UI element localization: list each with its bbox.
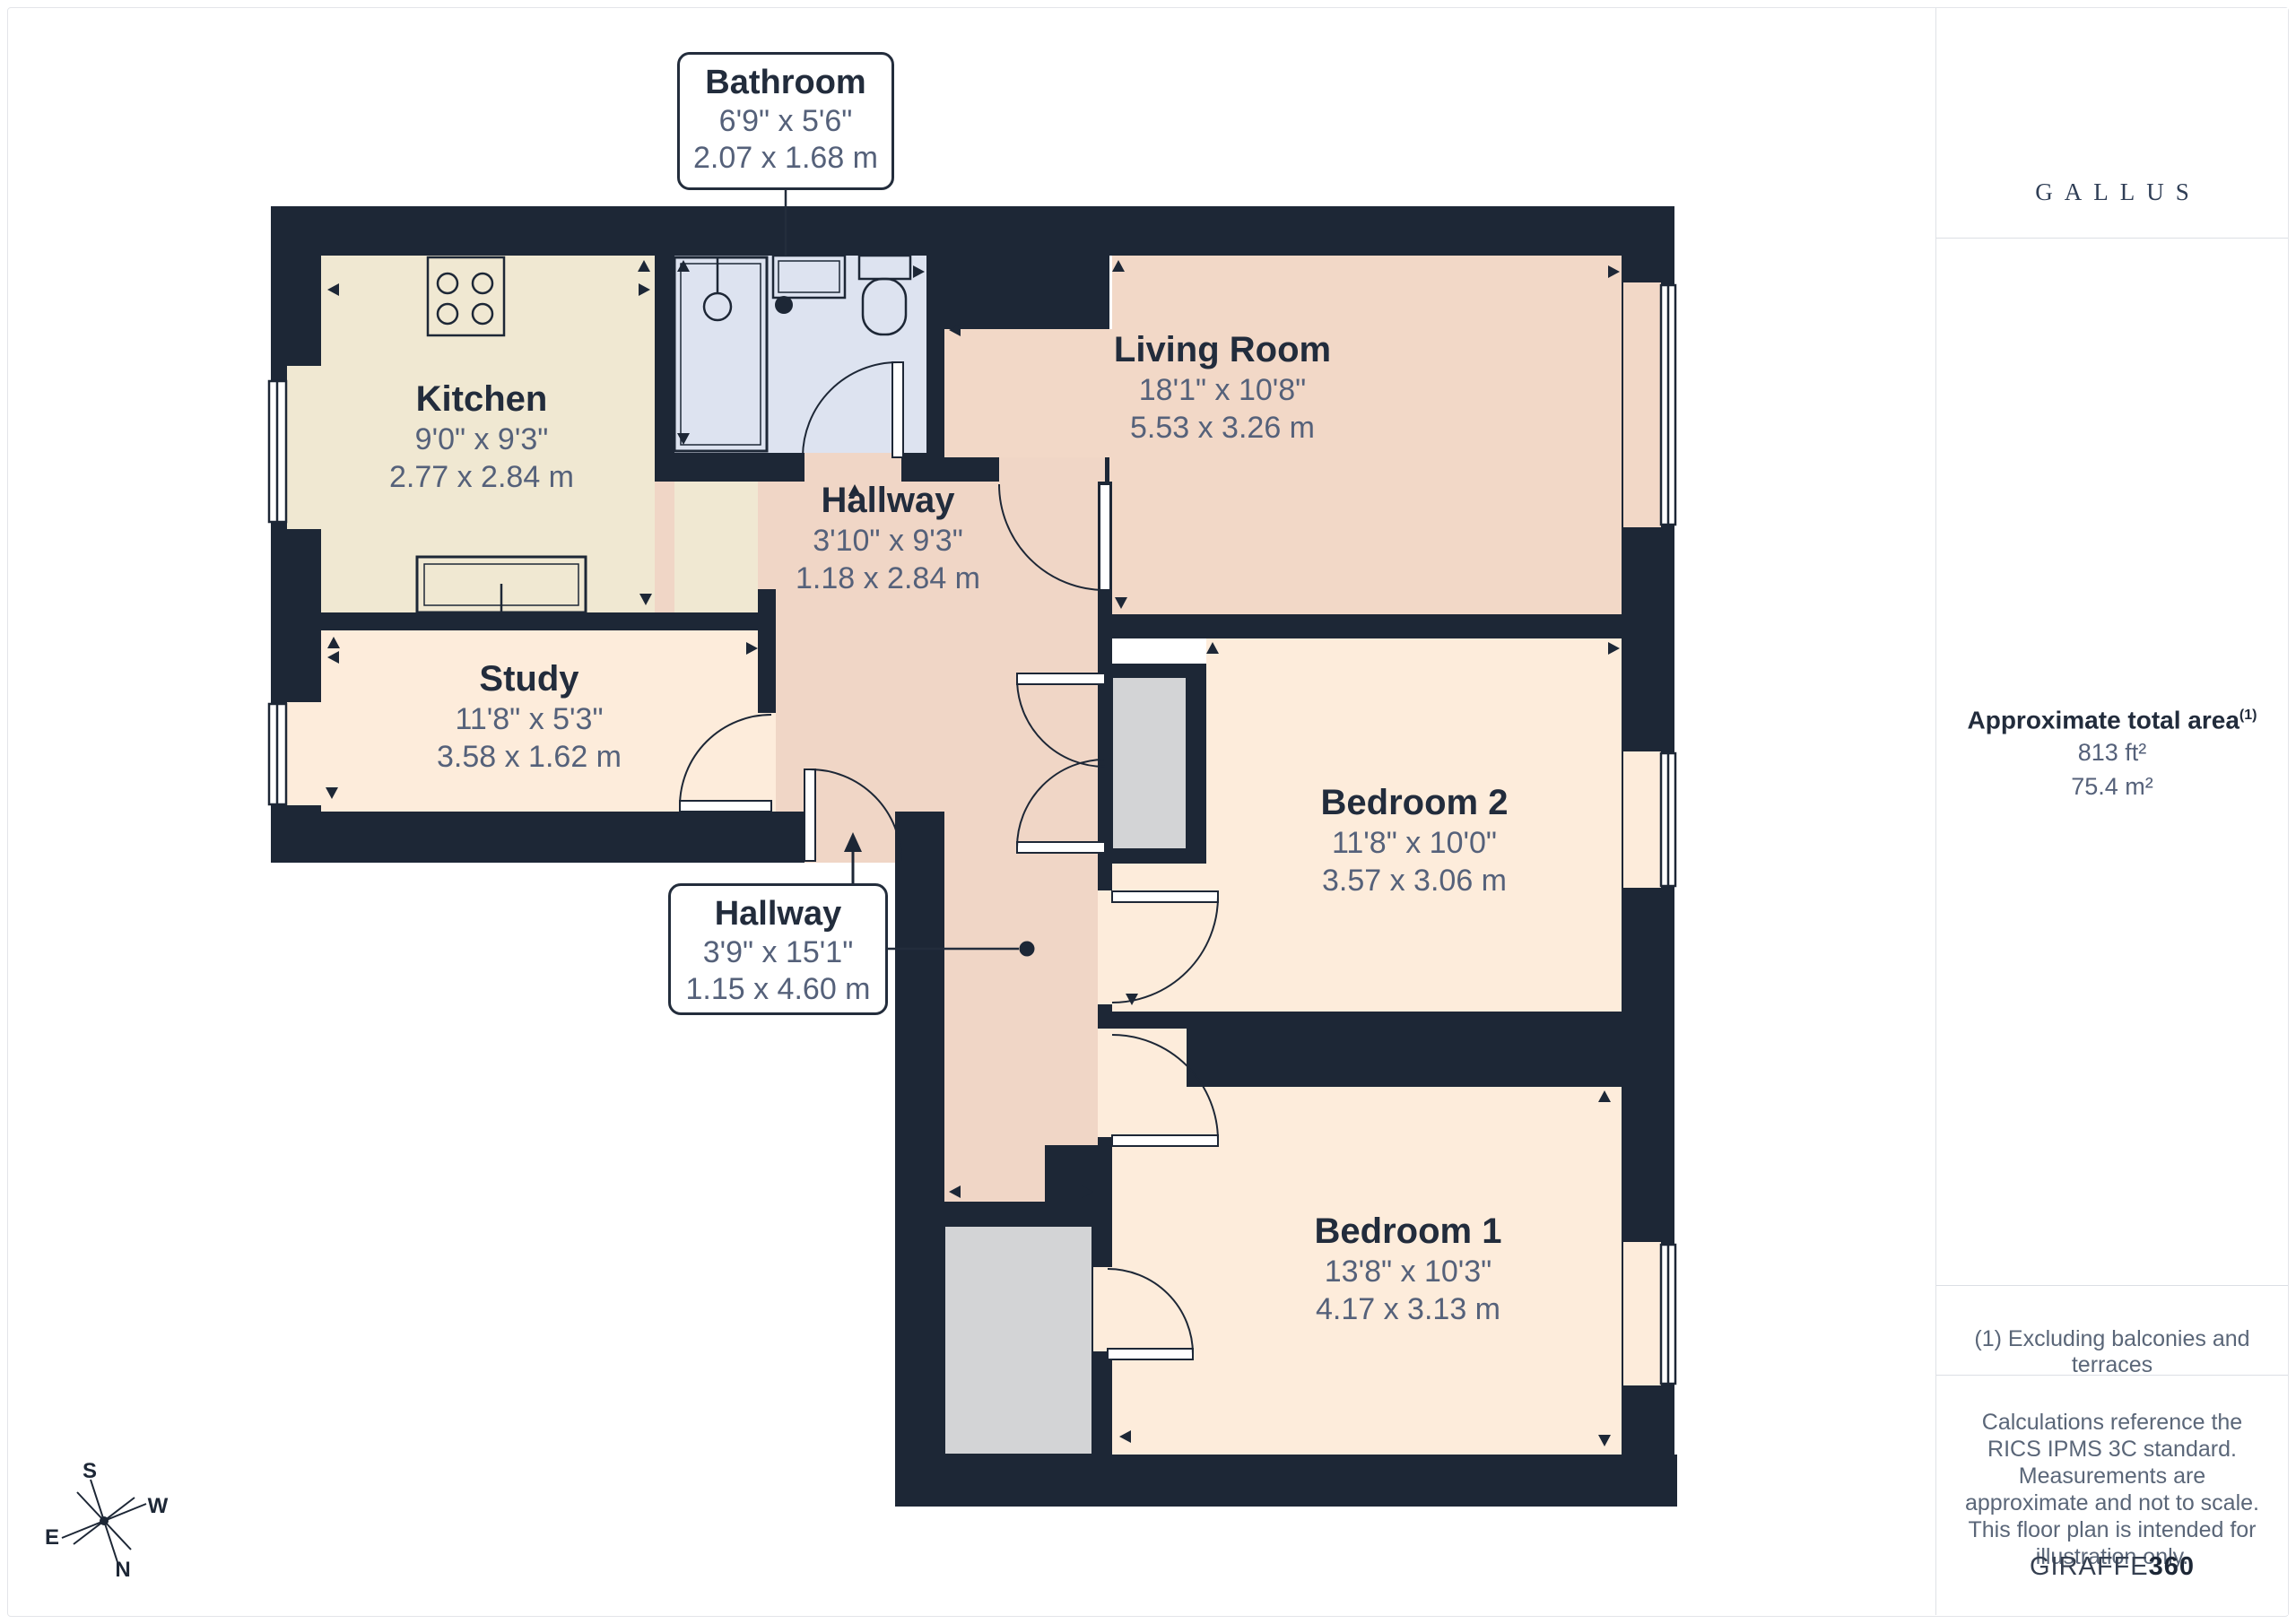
bedroom1-window-recess [1623,1242,1661,1385]
disclaimer-text: Calculations reference the RICS IPMS 3C … [1960,1409,2265,1570]
total-area-title: Approximate total area(1) [1936,700,2288,735]
compass-n: N [115,1558,130,1582]
gallus-logo: GALLUS [1936,35,2288,206]
compass-s: S [83,1459,97,1483]
sidebar-divider [1936,1285,2288,1286]
gallus-brand-text: GALLUS [1936,178,2288,206]
sidebar-divider [1936,1375,2288,1376]
bifold-door-leaf-bottom [1017,842,1105,853]
bedroom2-window-recess [1623,751,1661,888]
bedroom2-closet [1112,677,1187,849]
entrance-door-leaf [804,769,815,861]
study-door-leaf [680,801,771,812]
bathroom-floor [674,256,926,453]
bedroom1-door-leaf [1112,1135,1218,1146]
total-area-metric: 75.4 m² [1936,769,2288,803]
compass-icon: S W E N [45,1459,169,1582]
info-sidebar: GALLUS Approximate total area(1) 813 ft²… [1935,8,2288,1615]
bifold-door-leaf-top [1017,673,1105,684]
kitchen-floor-extension [674,482,758,612]
total-area-imperial: 813 ft² [1936,735,2288,769]
bedroom2-door-leaf [1112,891,1218,902]
living-room-label: Living Room 18'1" x 10'8" 5.53 x 3.26 m [1114,328,1331,447]
bathroom-door-leaf [892,362,903,457]
hall-storage-closet [944,1226,1092,1455]
bathroom-callout: Bathroom 6'9" x 5'6" 2.07 x 1.68 m [677,52,894,190]
basin-tap-icon [775,296,793,314]
kitchen-label: Kitchen 9'0" x 9'3" 2.77 x 2.84 m [389,378,574,496]
compass-e: E [45,1525,59,1550]
study-window-recess [287,702,321,805]
closet-door-leaf [1108,1349,1193,1359]
floorplan-page: S W E N Kitchen 9'0" x 9'3" 2.77 x 2.84 … [0,0,2296,1624]
sidebar-divider [1936,238,2288,239]
living-door-leaf [1100,484,1110,590]
compass-w: W [148,1494,169,1518]
total-area-block: Approximate total area(1) 813 ft² 75.4 m… [1936,700,2288,803]
kitchen-window-recess [287,366,321,529]
giraffe360-credit: GIRAFFE360 [1936,1552,2288,1582]
hallway-lower-callout: Hallway 3'9" x 15'1" 1.15 x 4.60 m [668,883,888,1015]
bedroom2-label: Bedroom 2 11'8" x 10'0" 3.57 x 3.06 m [1321,781,1509,899]
bedroom1-label: Bedroom 1 13'8" x 10'3" 4.17 x 3.13 m [1315,1210,1502,1328]
study-label: Study 11'8" x 5'3" 3.58 x 1.62 m [437,657,622,776]
living-window-recess [1623,282,1661,527]
hallway-upper-label: Hallway 3'10" x 9'3" 1.18 x 2.84 m [796,479,980,597]
area-footnote: (1) Excluding balconies and terraces [1936,1326,2288,1378]
